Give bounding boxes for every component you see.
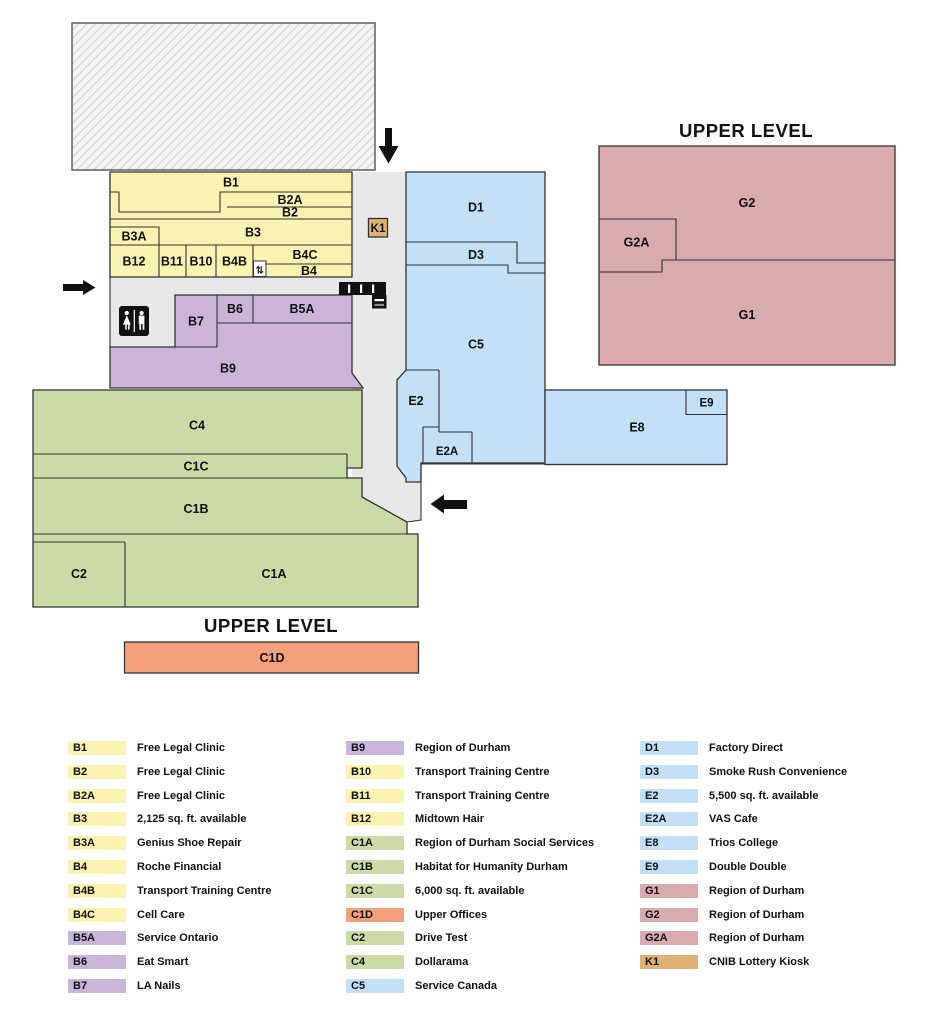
legend-name: Smoke Rush Convenience [709,766,847,778]
legend-item-b6: B6Eat Smart [68,955,271,969]
legend-name: Roche Financial [137,861,221,873]
legend-swatch: C5 [346,979,404,993]
legend-name: Region of Durham [709,909,804,921]
legend-item-b2: B2Free Legal Clinic [68,765,271,779]
legend-name: 6,000 sq. ft. available [415,885,524,897]
legend-swatch: D1 [640,741,698,755]
kiosk-k1: K1 [369,219,388,238]
unit-label-b9: B9 [220,362,236,376]
legend-name: Free Legal Clinic [137,742,225,754]
right-arrow-icon [63,280,96,295]
unit-label-g2a: G2A [624,236,650,250]
legend-swatch: G2A [640,931,698,945]
legend-swatch: C1A [346,836,404,850]
unit-label-e9: E9 [699,398,713,410]
legend-swatch: D3 [640,765,698,779]
legend-swatch: K1 [640,955,698,969]
legend-item-b3: B32,125 sq. ft. available [68,812,271,826]
upper-level-title-bottom: UPPER LEVEL [204,615,338,636]
legend-name: 5,500 sq. ft. available [709,790,818,802]
unit-label-b4: B4 [301,264,317,278]
legend-item-g1: G1Region of Durham [640,884,847,898]
legend-swatch: B4C [68,908,126,922]
hatched-area [72,23,375,170]
unit-label-b3: B3 [245,226,261,240]
legend-swatch: G1 [640,884,698,898]
legend-name: Free Legal Clinic [137,790,225,802]
block-d-blue: D1 D3 C5 E2 E2A [397,172,545,482]
legend-name: Service Canada [415,980,497,992]
legend-name: Drive Test [415,932,467,944]
legend-name: LA Nails [137,980,181,992]
block-b-yellow: B1 B2A B2 B3A B3 B12 B11 B10 B4B B4C B4 … [110,172,352,278]
unit-label-b10: B10 [190,255,213,269]
unit-label-g1: G1 [739,308,756,322]
unit-label-e2: E2 [408,394,423,408]
legend-name: Eat Smart [137,956,188,968]
unit-label-e2a: E2A [436,446,458,458]
legend-item-c1c: C1C6,000 sq. ft. available [346,884,594,898]
legend-item-e2a: E2AVAS Cafe [640,812,847,826]
legend-swatch: E2A [640,812,698,826]
legend-item-c5: C5Service Canada [346,979,594,993]
legend-item-c4: C4Dollarama [346,955,594,969]
legend-name: Free Legal Clinic [137,766,225,778]
block-c1d-orange: C1D [125,642,419,673]
legend-name: VAS Cafe [709,813,758,825]
legend-name: Transport Training Centre [137,885,271,897]
unit-label-b4c: B4C [292,248,317,262]
unit-label-b1: B1 [223,176,239,190]
legend-item-e9: E9Double Double [640,860,847,874]
legend-item-d1: D1Factory Direct [640,741,847,755]
legend-name: Service Ontario [137,932,218,944]
unit-label-b7: B7 [188,315,204,329]
legend-item-b2a: B2AFree Legal Clinic [68,789,271,803]
legend-name: Region of Durham [415,742,510,754]
down-arrow-icon [379,128,399,164]
unit-label-c1c: C1C [183,460,208,474]
legend-item-b5a: B5AService Ontario [68,931,271,945]
legend-item-g2a: G2ARegion of Durham [640,931,847,945]
legend-name: Genius Shoe Repair [137,837,242,849]
legend-swatch: B10 [346,765,404,779]
legend-swatch: E8 [640,836,698,850]
legend-item-d3: D3Smoke Rush Convenience [640,765,847,779]
block-g-pink: G2 G2A G1 [599,146,895,365]
unit-label-g2: G2 [739,196,756,210]
unit-label-c1a: C1A [261,567,286,581]
unit-label-b11: B11 [161,255,183,269]
legend-name: Transport Training Centre [415,766,549,778]
legend-name: Cell Care [137,909,185,921]
legend-item-k1: K1CNIB Lottery Kiosk [640,955,847,969]
unit-label-c4: C4 [189,419,205,433]
legend-swatch: B3A [68,836,126,850]
legend-swatch: B1 [68,741,126,755]
legend-item-b7: B7LA Nails [68,979,271,993]
unit-label-b2: B2 [282,206,298,220]
legend-item-b11: B11Transport Training Centre [346,789,594,803]
legend-swatch: B4B [68,884,126,898]
unit-label-c5: C5 [468,338,484,352]
legend-item-e2: E25,500 sq. ft. available [640,789,847,803]
stairs-icon: ⇅ [254,261,267,277]
unit-label-b4b: B4B [222,255,247,269]
legend-swatch: B3 [68,812,126,826]
legend-item-c1a: C1ARegion of Durham Social Services [346,836,594,850]
legend-swatch: B9 [346,741,404,755]
legend-name: Region of Durham [709,932,804,944]
legend-item-b10: B10Transport Training Centre [346,765,594,779]
legend-item-e8: E8Trios College [640,836,847,850]
exit-walkway-outline [407,464,545,522]
unit-label-c2: C2 [71,567,87,581]
legend-item-c1b: C1BHabitat for Humanity Durham [346,860,594,874]
legend-name: 2,125 sq. ft. available [137,813,246,825]
legend-swatch: E9 [640,860,698,874]
legend-swatch: C1C [346,884,404,898]
svg-text:⇅: ⇅ [256,266,264,277]
legend-swatch: B2A [68,789,126,803]
legend-column-2: B9Region of Durham B10Transport Training… [346,741,594,1003]
legend-column-3: D1Factory Direct D3Smoke Rush Convenienc… [640,741,847,979]
legend-swatch: E2 [640,789,698,803]
legend-swatch: B2 [68,765,126,779]
legend-item-c2: C2Drive Test [346,931,594,945]
legend-swatch: C2 [346,931,404,945]
unit-label-c1d: C1D [259,651,284,665]
legend-name: Upper Offices [415,909,487,921]
restroom-icon [119,306,149,336]
legend-name: Dollarama [415,956,468,968]
legend-name: Factory Direct [709,742,783,754]
upper-level-title-right: UPPER LEVEL [679,120,813,141]
unit-label-k1: K1 [371,223,386,235]
legend-item-b1: B1Free Legal Clinic [68,741,271,755]
unit-label-d3: D3 [468,248,484,262]
legend-swatch: B4 [68,860,126,874]
legend-swatch: B12 [346,812,404,826]
unit-label-b6: B6 [227,302,243,316]
block-e-blue: E8 E9 [545,390,727,465]
mall-directory: B1 B2A B2 B3A B3 B12 B11 B10 B4B B4C B4 … [0,0,925,1024]
legend-item-b3a: B3AGenius Shoe Repair [68,836,271,850]
legend-item-b4: B4Roche Financial [68,860,271,874]
legend-name: CNIB Lottery Kiosk [709,956,809,968]
legend-swatch: B6 [68,955,126,969]
legend-item-c1d: C1DUpper Offices [346,908,594,922]
legend-name: Midtown Hair [415,813,484,825]
legend-name: Trios College [709,837,778,849]
unit-label-d1: D1 [468,201,484,215]
unit-label-b12: B12 [123,255,146,269]
legend-name: Double Double [709,861,787,873]
legend-swatch: G2 [640,908,698,922]
legend-name: Habitat for Humanity Durham [415,861,568,873]
unit-label-c1b: C1B [183,502,208,516]
legend-name: Region of Durham Social Services [415,837,594,849]
legend-swatch: C1D [346,908,404,922]
legend-name: Region of Durham [709,885,804,897]
legend-column-1: B1Free Legal Clinic B2Free Legal Clinic … [68,741,271,1003]
legend-name: Transport Training Centre [415,790,549,802]
floor-plan: B1 B2A B2 B3A B3 B12 B11 B10 B4B B4C B4 … [0,0,925,710]
unit-label-b5a: B5A [289,302,314,316]
left-arrow-icon [431,495,468,514]
unit-label-b3a: B3A [121,230,146,244]
legend-item-b4b: B4BTransport Training Centre [68,884,271,898]
legend-swatch: B11 [346,789,404,803]
legend-item-b12: B12Midtown Hair [346,812,594,826]
legend-swatch: B7 [68,979,126,993]
legend-item-b9: B9Region of Durham [346,741,594,755]
legend-swatch: C4 [346,955,404,969]
block-c-green: C4 C1C C1B C2 C1A [33,390,418,607]
legend-swatch: B5A [68,931,126,945]
legend-swatch: C1B [346,860,404,874]
legend-item-g2: G2Region of Durham [640,908,847,922]
unit-label-e8: E8 [629,421,644,435]
legend-item-b4c: B4CCell Care [68,908,271,922]
